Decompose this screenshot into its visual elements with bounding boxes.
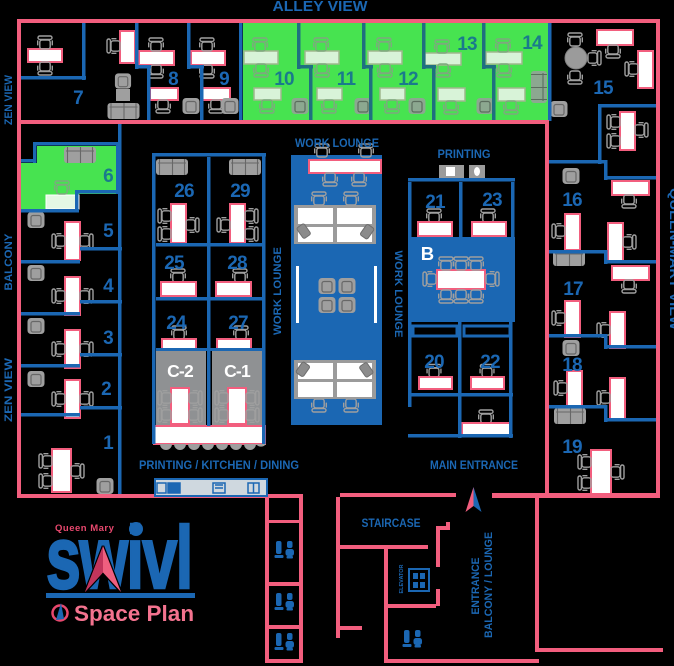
svg-text:3: 3	[103, 328, 113, 349]
svg-text:20: 20	[424, 352, 444, 373]
svg-text:PRINTING / KITCHEN / DINING: PRINTING / KITCHEN / DINING	[139, 460, 299, 472]
svg-text:QUEEN-MARY VIEW: QUEEN-MARY VIEW	[667, 188, 674, 331]
svg-text:19: 19	[562, 437, 582, 458]
svg-text:16: 16	[562, 190, 582, 211]
svg-text:4: 4	[103, 276, 114, 297]
svg-text:ALLEY VIEW: ALLEY VIEW	[273, 0, 369, 15]
svg-text:25: 25	[164, 253, 185, 274]
svg-text:17: 17	[563, 279, 583, 300]
svg-text:27: 27	[228, 313, 248, 334]
svg-text:28: 28	[227, 253, 247, 274]
svg-text:WORK LOUNGE: WORK LOUNGE	[392, 251, 404, 338]
svg-text:8: 8	[168, 69, 178, 90]
svg-text:11: 11	[337, 69, 357, 90]
svg-text:13: 13	[457, 34, 477, 55]
svg-text:C-1: C-1	[224, 361, 251, 381]
svg-text:ZEN VIEW: ZEN VIEW	[3, 74, 15, 125]
svg-text:ENTRANCE: ENTRANCE	[470, 558, 482, 615]
svg-text:18: 18	[562, 355, 582, 376]
svg-text:21: 21	[425, 192, 446, 213]
svg-text:1: 1	[103, 433, 114, 454]
svg-text:5: 5	[103, 221, 114, 242]
svg-text:22: 22	[480, 352, 500, 373]
svg-text:26: 26	[174, 181, 194, 202]
svg-text:9: 9	[219, 69, 229, 90]
svg-text:15: 15	[593, 78, 614, 99]
svg-text:BALCONY / LOUNGE: BALCONY / LOUNGE	[483, 532, 495, 638]
svg-text:MAIN ENTRANCE: MAIN ENTRANCE	[430, 458, 518, 472]
svg-text:24: 24	[166, 313, 187, 334]
svg-text:WORK LOUNGE: WORK LOUNGE	[272, 247, 284, 335]
svg-text:7: 7	[73, 88, 83, 109]
svg-text:BALCONY: BALCONY	[3, 233, 15, 291]
svg-text:ELEVATOR: ELEVATOR	[399, 564, 405, 593]
svg-text:Space Plan: Space Plan	[74, 601, 194, 626]
svg-text:6: 6	[103, 166, 113, 187]
svg-text:swivl: swivl	[46, 510, 192, 608]
svg-text:29: 29	[230, 181, 250, 202]
svg-text:B: B	[421, 243, 434, 264]
svg-text:12: 12	[398, 69, 418, 90]
svg-text:10: 10	[274, 69, 294, 90]
svg-text:23: 23	[482, 190, 502, 211]
svg-text:2: 2	[101, 379, 111, 400]
svg-text:C-2: C-2	[167, 361, 194, 381]
svg-text:14: 14	[522, 33, 543, 54]
svg-text:ZEN VIEW: ZEN VIEW	[3, 357, 15, 422]
svg-text:STAIRCASE: STAIRCASE	[362, 516, 421, 530]
svg-text:WORK LOUNGE: WORK LOUNGE	[295, 136, 379, 150]
svg-text:PRINTING: PRINTING	[438, 147, 491, 161]
